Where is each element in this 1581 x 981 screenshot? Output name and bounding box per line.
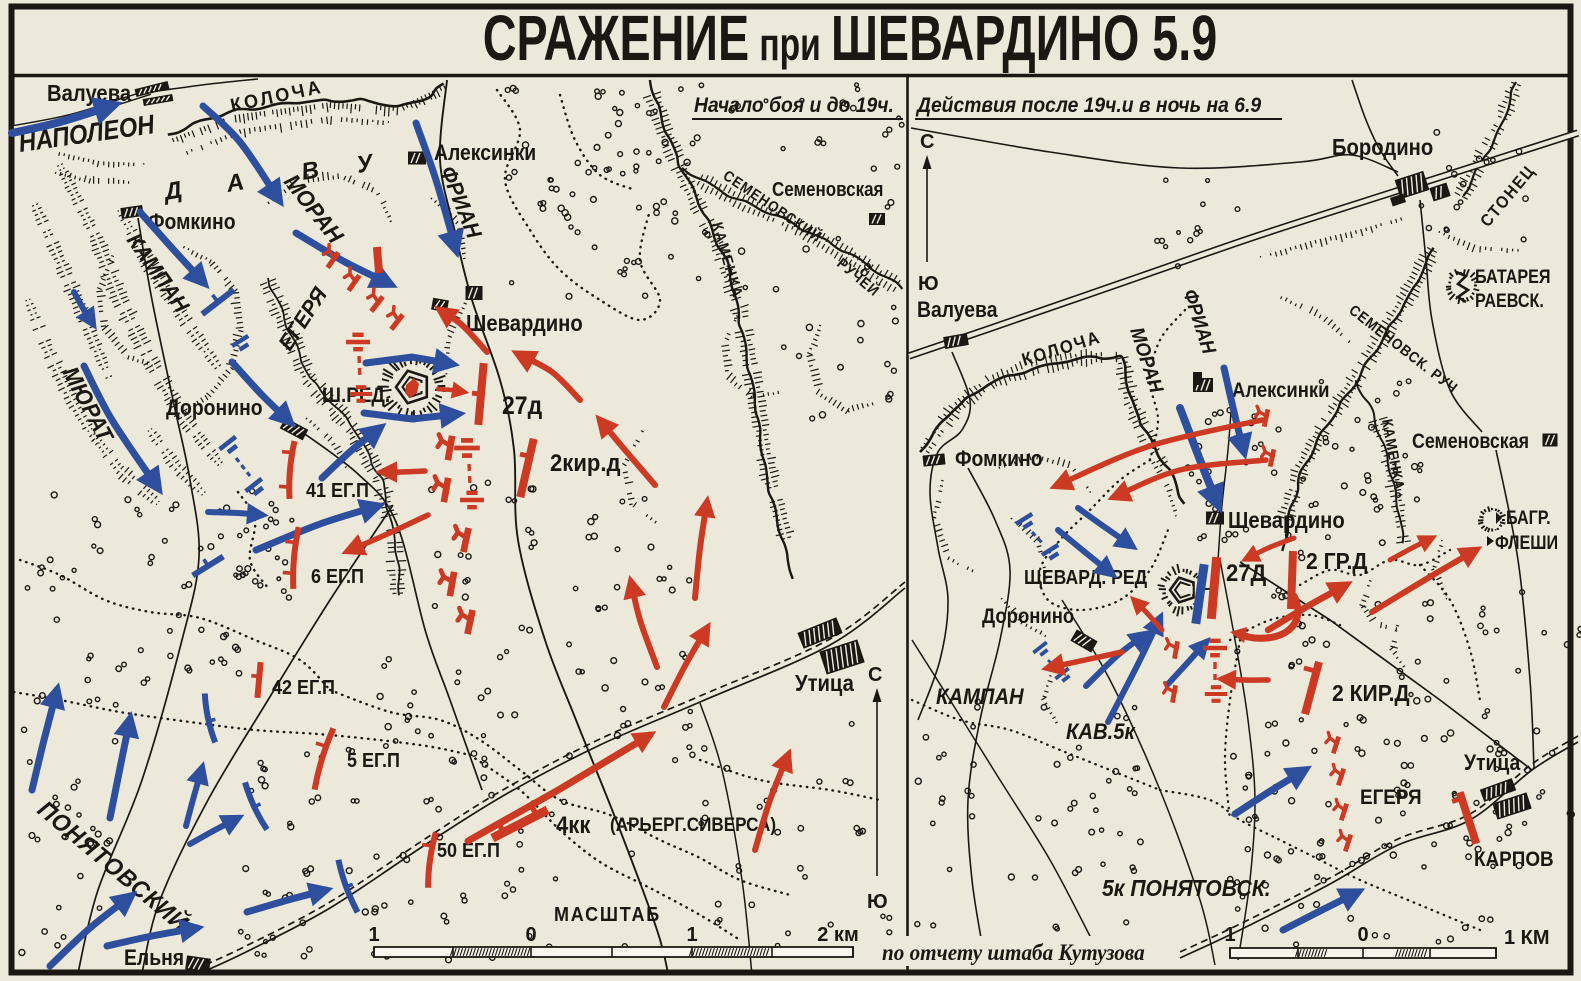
svg-text:4кк: 4кк	[556, 811, 591, 838]
svg-text:(АРЬЕРГ.СИВЕРСА): (АРЬЕРГ.СИВЕРСА)	[610, 814, 776, 835]
svg-text:Бородино: Бородино	[1332, 134, 1433, 161]
svg-text:КАВ.5к: КАВ.5к	[1066, 720, 1136, 744]
svg-text:1: 1	[368, 924, 379, 946]
svg-text:41 ЕГ.П: 41 ЕГ.П	[306, 480, 369, 502]
svg-text:2 ГР.Д: 2 ГР.Д	[1306, 548, 1368, 574]
svg-text:2 КИР.Д: 2 КИР.Д	[1332, 680, 1410, 706]
svg-text:ЩЕВАРД. РЕД: ЩЕВАРД. РЕД	[1024, 566, 1148, 588]
svg-text:Семеновская: Семеновская	[772, 178, 883, 201]
svg-text:27Д: 27Д	[1226, 559, 1266, 586]
svg-text:Ю: Ю	[918, 273, 939, 295]
svg-text:С: С	[920, 131, 934, 153]
svg-text:Доронино: Доронино	[166, 396, 263, 420]
svg-text:1: 1	[1224, 924, 1235, 946]
svg-text:Алексинки: Алексинки	[1232, 379, 1329, 402]
svg-text:Валуева: Валуева	[917, 298, 998, 322]
svg-text:5к ПОНЯТОВСК.: 5к ПОНЯТОВСК.	[1102, 875, 1271, 901]
svg-text:Утица: Утица	[1464, 751, 1521, 775]
svg-text:1: 1	[686, 924, 697, 946]
svg-text:0: 0	[525, 924, 536, 946]
svg-text:Семеновская: Семеновская	[1412, 430, 1529, 454]
svg-text:Утица: Утица	[795, 670, 855, 697]
svg-text:2 км: 2 км	[817, 924, 858, 946]
svg-text:Ельня: Ельня	[124, 946, 184, 970]
svg-text:Фомкино: Фомкино	[955, 447, 1043, 471]
svg-text:Начало боя и до 19ч.: Начало боя и до 19ч.	[694, 94, 894, 117]
svg-text:ФЛЕШИ: ФЛЕШИ	[1495, 532, 1558, 554]
svg-text:КАРПОВ: КАРПОВ	[1474, 848, 1554, 871]
svg-text:БАТАРЕЯ: БАТАРЕЯ	[1475, 266, 1550, 288]
svg-text:5 ЕГ.П: 5 ЕГ.П	[347, 750, 400, 772]
svg-text:Шевардино: Шевардино	[466, 310, 583, 337]
svg-text:СРАЖЕНИЕприШЕВАРДИНО 5.9: СРАЖЕНИЕприШЕВАРДИНО 5.9	[483, 2, 1217, 74]
svg-text:КАМПАН: КАМПАН	[936, 685, 1024, 709]
svg-text:6 ЕГ.П: 6 ЕГ.П	[311, 566, 364, 588]
svg-text:РАЕВСК.: РАЕВСК.	[1475, 290, 1544, 312]
svg-text:Алексинки: Алексинки	[434, 141, 536, 165]
svg-text:Ю: Ю	[867, 891, 888, 913]
svg-text:Действия после 19ч.и в ночь на: Действия после 19ч.и в ночь на 6.9	[915, 94, 1262, 117]
svg-text:Доронино: Доронино	[982, 605, 1074, 628]
svg-text:С: С	[868, 664, 882, 686]
svg-text:ЕГЕРЯ: ЕГЕРЯ	[1360, 786, 1422, 809]
svg-text:по отчету штаба Кутузова: по отчету штаба Кутузова	[882, 939, 1145, 965]
svg-text:2кир.д: 2кир.д	[550, 449, 621, 476]
svg-text:0: 0	[1357, 924, 1368, 946]
svg-text:МАСШТАБ: МАСШТАБ	[554, 904, 661, 926]
svg-text:Шевардино: Шевардино	[1228, 507, 1345, 534]
svg-text:БАГР.: БАГР.	[1506, 507, 1551, 529]
svg-text:42 ЕГ.П: 42 ЕГ.П	[272, 677, 335, 699]
svg-text:27д: 27д	[502, 392, 542, 420]
svg-text:1 КМ: 1 КМ	[1504, 927, 1550, 949]
